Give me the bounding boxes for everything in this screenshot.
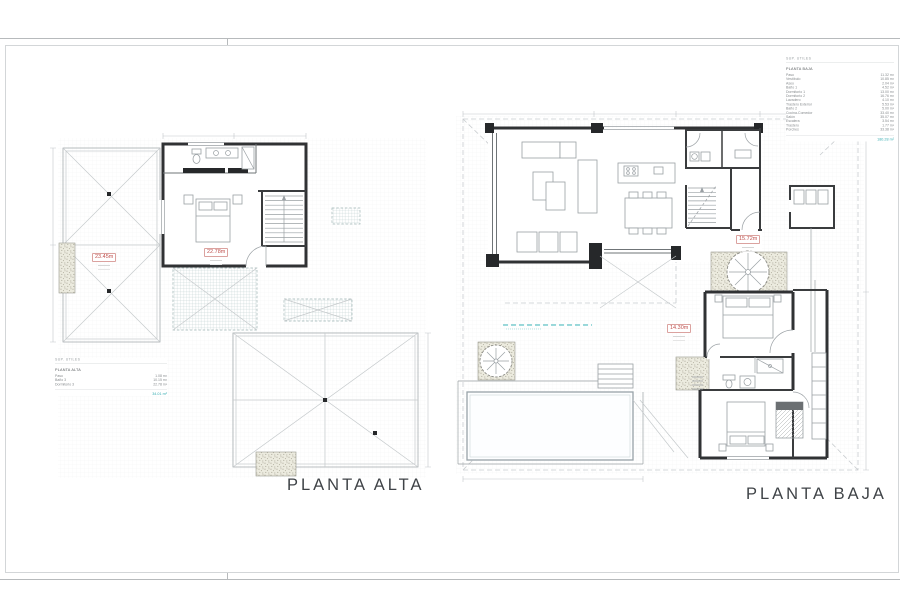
plan-sheet: SUP. UTILES PLANTA ALTA Paso1.08 m² Baño… — [0, 0, 900, 600]
sheet-border-bottom — [0, 579, 900, 580]
area-value: 15.72m — [736, 235, 760, 244]
legend-row: Porches33.38 m² — [786, 128, 894, 132]
area-value: 22.78m — [204, 248, 228, 257]
legend-header: SUP. UTILES — [55, 358, 167, 364]
area-value: 14.30m — [667, 324, 691, 333]
sub-label-mark — [742, 247, 754, 252]
room-area: 22.78 m² — [153, 383, 167, 387]
legend-planta-baja: SUP. UTILES PLANTA BAJA Paso11.32 m² Ves… — [786, 57, 894, 141]
area-label-paso-baja: 15.72m — [736, 227, 760, 252]
title-planta-alta: PLANTA ALTA — [287, 476, 425, 495]
legend-total: 34.01 m² — [55, 390, 167, 397]
sheet-border-tick-bottom — [227, 572, 228, 580]
room-area: 33.38 m² — [880, 128, 894, 132]
legend-planta-alta: SUP. UTILES PLANTA ALTA Paso1.08 m² Baño… — [55, 358, 167, 396]
title-planta-baja: PLANTA BAJA — [746, 485, 887, 504]
legend-header: SUP. UTILES — [786, 57, 894, 63]
area-value: 23.45m — [92, 253, 116, 262]
legend-row: Dormitorio 322.78 m² — [55, 383, 167, 387]
sub-label-mark — [673, 336, 685, 341]
area-label-dormitorio-baja: 14.30m — [667, 316, 691, 341]
room-name: Porches — [786, 128, 799, 132]
legend-total: 180.28 m² — [786, 135, 894, 142]
sub-label-mark — [210, 260, 222, 265]
sub-label-mark — [98, 265, 110, 270]
legend-title: PLANTA ALTA — [55, 368, 167, 373]
area-label-roof-alta: 23.45m — [92, 245, 116, 270]
room-name: Dormitorio 3 — [55, 383, 74, 387]
legend-title: PLANTA BAJA — [786, 67, 894, 72]
area-label-dormitorio3: 22.78m — [204, 240, 228, 265]
sheet-border-top — [0, 38, 900, 39]
